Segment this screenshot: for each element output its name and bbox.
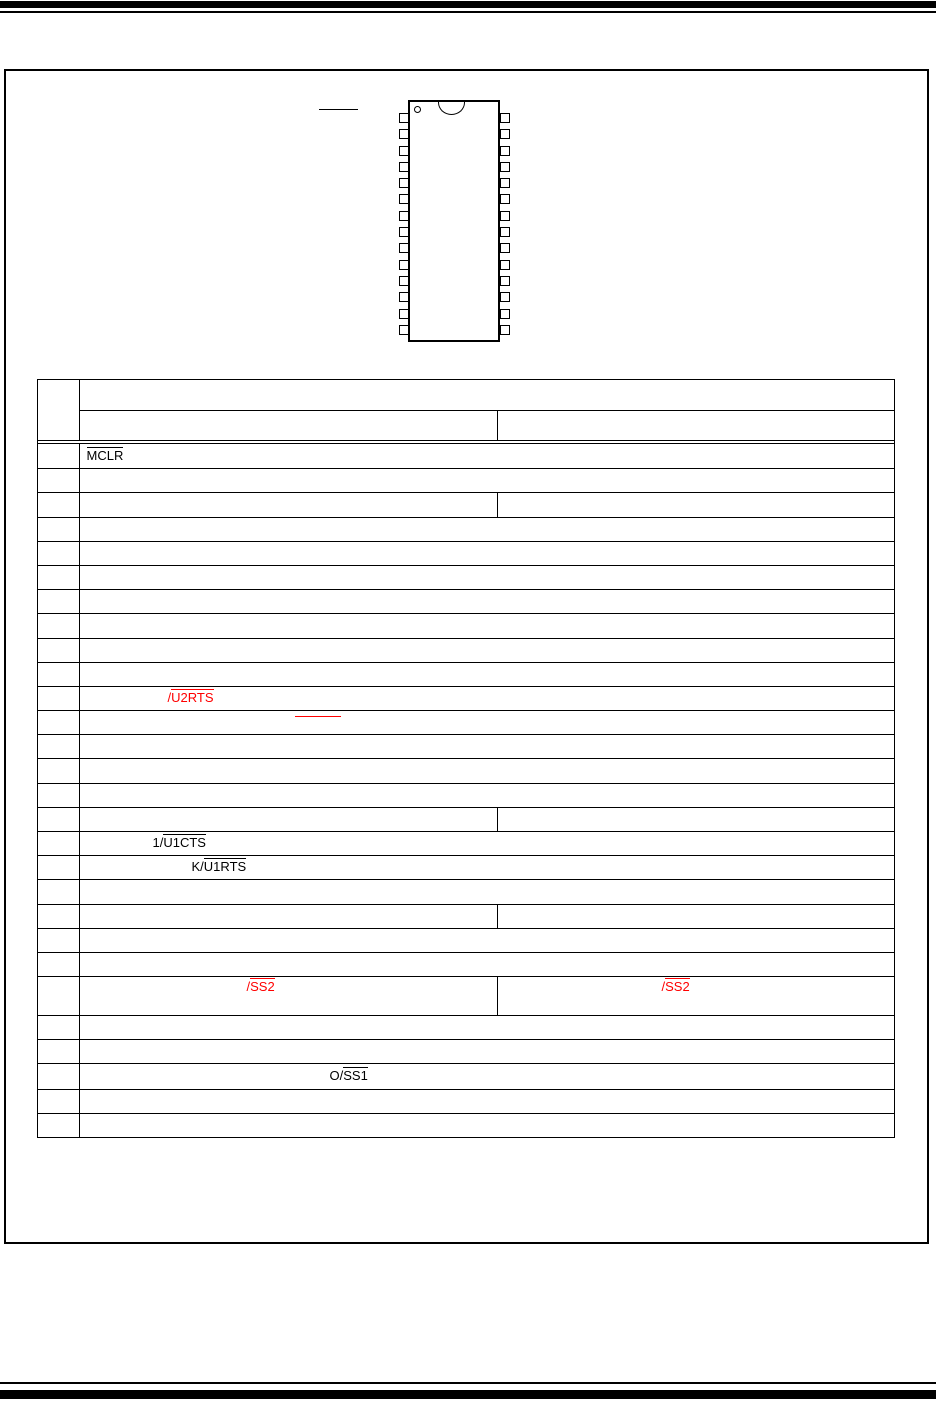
pin-name-mclr: MCLR — [87, 449, 124, 464]
row-number-cell — [38, 856, 80, 879]
pin-name-ss1: O/SS1 — [330, 1069, 368, 1084]
description-cell — [80, 614, 895, 637]
table-row: /SS2 /SS2 — [38, 976, 894, 1015]
chip-pin — [500, 325, 510, 335]
header-subrow — [80, 411, 895, 440]
table-row — [38, 1015, 894, 1039]
description-cell — [80, 518, 895, 541]
row-number-cell — [38, 1090, 80, 1113]
description-cell — [80, 784, 895, 807]
description-cell — [80, 469, 895, 492]
table-row — [38, 807, 894, 831]
pin1-notch — [438, 102, 465, 115]
table-row: MCLR — [38, 444, 894, 468]
description-cell-left — [80, 808, 498, 831]
chip-pin — [399, 243, 409, 253]
chip-pin — [399, 276, 409, 286]
chip-pin — [399, 162, 409, 172]
description-cell — [80, 542, 895, 565]
header-title-cell — [80, 380, 895, 411]
header-pin-number-cell — [38, 380, 80, 440]
chip-pin — [399, 146, 409, 156]
description-cell-right — [498, 905, 895, 928]
description-cell-left: /SS2 — [80, 977, 498, 1015]
row-number-cell — [38, 1016, 80, 1039]
table-row — [38, 613, 894, 637]
description-cell — [80, 880, 895, 903]
table-row: /U2RTS — [38, 686, 894, 710]
table-row: 1/U1CTS — [38, 831, 894, 855]
description-cell — [80, 953, 895, 976]
table-row: O/SS1 — [38, 1063, 894, 1089]
page-bottom-thin-rule — [0, 1382, 936, 1384]
chip-pin — [399, 309, 409, 319]
row-number-cell — [38, 759, 80, 782]
description-cell-left — [80, 493, 498, 516]
table-row — [38, 565, 894, 589]
description-cell-right — [498, 808, 895, 831]
table-row — [38, 492, 894, 516]
header-main — [80, 380, 895, 440]
page-top-thin-rule — [0, 11, 936, 13]
page-top-thick-rule — [0, 1, 936, 8]
row-number-cell — [38, 784, 80, 807]
description-cell-left — [80, 905, 498, 928]
chip-pins-right — [500, 113, 510, 335]
table-row — [38, 710, 894, 734]
row-number-cell — [38, 542, 80, 565]
row-number-cell — [38, 1064, 80, 1089]
chip-pin — [500, 162, 510, 172]
table-row — [38, 783, 894, 807]
description-cell — [80, 711, 895, 734]
row-number-cell — [38, 929, 80, 952]
chip-pin — [500, 211, 510, 221]
table-row — [38, 1113, 894, 1137]
chip-pin — [500, 243, 510, 253]
row-number-cell — [38, 832, 80, 855]
chip-pin — [500, 309, 510, 319]
chip-pin — [500, 129, 510, 139]
description-cell — [80, 759, 895, 782]
table-body: MCLR /U2RTS — [38, 443, 894, 1137]
table-row — [38, 517, 894, 541]
table-row — [38, 904, 894, 928]
row-number-cell — [38, 808, 80, 831]
chip-pin — [500, 113, 510, 123]
table-row — [38, 928, 894, 952]
row-number-cell — [38, 711, 80, 734]
row-number-cell — [38, 469, 80, 492]
description-cell — [80, 1114, 895, 1137]
table-header — [38, 380, 894, 441]
chip-pin — [500, 260, 510, 270]
chip-pin — [500, 292, 510, 302]
pin-label-overline — [319, 109, 358, 110]
table-row — [38, 1089, 894, 1113]
pin-name-u1rts: K/U1RTS — [192, 860, 247, 875]
row-number-cell — [38, 566, 80, 589]
row-number-cell — [38, 1114, 80, 1137]
table-row — [38, 541, 894, 565]
description-cell: MCLR — [80, 444, 895, 468]
description-cell-right: /SS2 — [498, 977, 895, 1015]
row-number-cell — [38, 1040, 80, 1063]
chip-pin — [399, 113, 409, 123]
table-row — [38, 638, 894, 662]
chip-pin — [399, 260, 409, 270]
table-row — [38, 1039, 894, 1063]
description-cell: O/SS1 — [80, 1064, 895, 1089]
table-row — [38, 758, 894, 782]
row-number-cell — [38, 687, 80, 710]
chip-pin — [399, 178, 409, 188]
description-cell — [80, 1040, 895, 1063]
header-subcell-left — [80, 411, 498, 440]
pin1-indicator-dot — [414, 106, 421, 113]
row-number-cell — [38, 444, 80, 468]
description-cell — [80, 590, 895, 613]
pin-name-ss2-left: /SS2 — [247, 980, 275, 995]
chip-pins-left — [399, 113, 409, 335]
row-number-cell — [38, 663, 80, 686]
row-number-cell — [38, 735, 80, 758]
description-cell — [80, 1090, 895, 1113]
row-number-cell — [38, 905, 80, 928]
description-cell — [80, 929, 895, 952]
pin-name-u1cts: 1/U1CTS — [153, 836, 206, 851]
description-cell: 1/U1CTS — [80, 832, 895, 855]
table-row — [38, 589, 894, 613]
description-cell: K/U1RTS — [80, 856, 895, 879]
chip-pin — [500, 178, 510, 188]
redacted-overline — [295, 716, 341, 717]
description-cell — [80, 639, 895, 662]
table-row — [38, 468, 894, 492]
row-number-cell — [38, 953, 80, 976]
row-number-cell — [38, 493, 80, 516]
table-row — [38, 662, 894, 686]
pin-description-table: MCLR /U2RTS — [37, 379, 895, 1138]
chip-pin — [500, 146, 510, 156]
chip-pin — [399, 211, 409, 221]
table-row — [38, 879, 894, 903]
row-number-cell — [38, 590, 80, 613]
chip-pin — [399, 325, 409, 335]
chip-pin — [399, 129, 409, 139]
header-subcell-right — [498, 411, 895, 440]
table-row — [38, 734, 894, 758]
chip-pin — [500, 276, 510, 286]
description-cell — [80, 1016, 895, 1039]
dip-chip-diagram — [408, 100, 500, 342]
row-number-cell — [38, 977, 80, 1015]
chip-pin — [399, 227, 409, 237]
chip-pin — [399, 194, 409, 204]
table-row — [38, 952, 894, 976]
description-cell — [80, 566, 895, 589]
row-number-cell — [38, 614, 80, 637]
table-row: K/U1RTS — [38, 855, 894, 879]
page-bottom-thick-rule — [0, 1390, 936, 1400]
pin-name-u2rts: /U2RTS — [168, 691, 214, 706]
description-cell — [80, 663, 895, 686]
chip-pin — [500, 227, 510, 237]
chip-pin — [399, 292, 409, 302]
row-number-cell — [38, 880, 80, 903]
description-cell-right — [498, 493, 895, 516]
description-cell: /U2RTS — [80, 687, 895, 710]
description-cell — [80, 735, 895, 758]
row-number-cell — [38, 518, 80, 541]
chip-pin — [500, 194, 510, 204]
pin-name-ss2-right: /SS2 — [662, 980, 690, 995]
row-number-cell — [38, 639, 80, 662]
